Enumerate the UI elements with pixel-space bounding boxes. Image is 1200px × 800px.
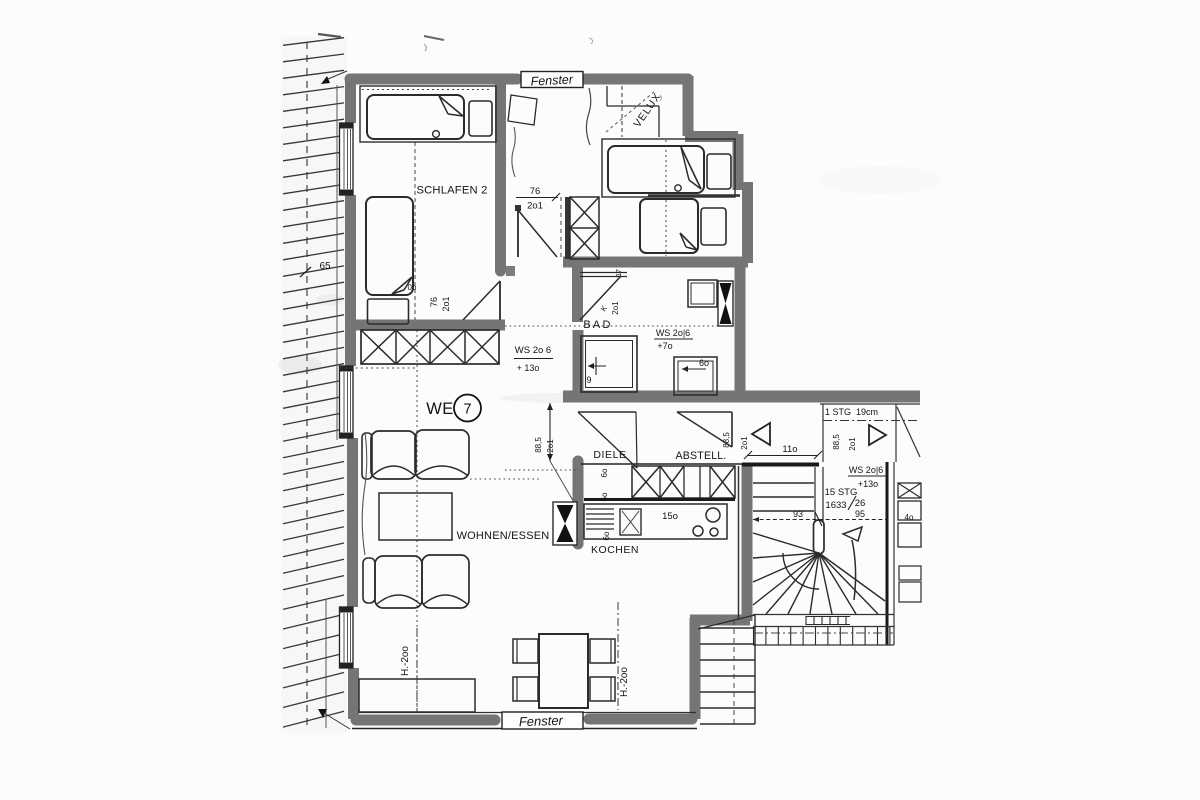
svg-text:93: 93	[793, 509, 803, 519]
svg-text:+13o: +13o	[858, 479, 878, 489]
svg-text:19cm: 19cm	[856, 407, 878, 417]
svg-text:17: 17	[616, 269, 623, 277]
svg-text:WS 2o 6: WS 2o 6	[515, 345, 551, 356]
svg-text:26: 26	[855, 498, 866, 509]
svg-text:WE: WE	[426, 400, 454, 418]
svg-text:76: 76	[530, 186, 541, 197]
svg-text:+7o: +7o	[657, 341, 672, 351]
svg-text:KOCHEN: KOCHEN	[591, 544, 639, 556]
svg-text:2o1: 2o1	[441, 296, 451, 311]
svg-text:6o: 6o	[699, 358, 709, 368]
svg-text:2o1: 2o1	[740, 436, 749, 450]
svg-text:1 STG: 1 STG	[825, 407, 851, 417]
svg-text:65: 65	[319, 261, 331, 272]
svg-text:95: 95	[855, 509, 865, 519]
svg-text:11o: 11o	[782, 444, 797, 455]
svg-text:Fenster: Fenster	[530, 72, 574, 88]
svg-text:2o1: 2o1	[848, 437, 857, 451]
svg-text:7: 7	[463, 402, 471, 418]
svg-text:9: 9	[586, 375, 591, 385]
svg-text:2o1: 2o1	[527, 201, 543, 212]
svg-text:0o: 0o	[408, 283, 417, 292]
svg-text:6o: 6o	[602, 531, 611, 540]
svg-text:WS 2o|6: WS 2o|6	[849, 465, 883, 475]
svg-text:15o: 15o	[662, 511, 678, 522]
svg-text:2o1: 2o1	[546, 439, 555, 453]
svg-text:88,5: 88,5	[722, 432, 731, 448]
svg-text:6o: 6o	[600, 468, 609, 477]
svg-text:6o: 6o	[600, 492, 609, 501]
svg-text:BAD: BAD	[583, 319, 612, 331]
svg-text:WOHNEN/ESSEN: WOHNEN/ESSEN	[457, 530, 550, 542]
svg-text:+ 13o: + 13o	[517, 363, 540, 373]
svg-text:88,5: 88,5	[534, 437, 543, 453]
svg-text:88,5: 88,5	[832, 434, 841, 450]
svg-text:76: 76	[429, 297, 439, 307]
svg-text:H.-2oo: H.-2oo	[400, 646, 411, 676]
svg-text:1633: 1633	[825, 500, 846, 511]
svg-text:15 STG: 15 STG	[825, 487, 858, 498]
svg-text:2o1: 2o1	[611, 301, 620, 315]
svg-text:WS 2o|6: WS 2o|6	[656, 328, 690, 338]
svg-text:DIELE: DIELE	[593, 449, 626, 461]
svg-text:ABSTELL.: ABSTELL.	[675, 450, 726, 462]
svg-text:4o: 4o	[905, 513, 914, 522]
svg-text:SCHLAFEN 2: SCHLAFEN 2	[416, 185, 487, 197]
svg-text:Fenster: Fenster	[519, 713, 564, 730]
svg-text:H.-2oo: H.-2oo	[619, 667, 630, 697]
